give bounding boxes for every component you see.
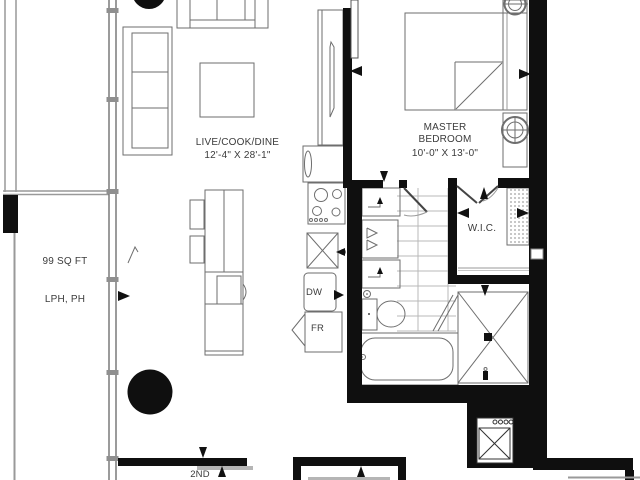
bathroom [353, 188, 458, 385]
cooktop [308, 183, 345, 224]
sofa-left [123, 27, 172, 155]
label-master-dimensions: 10'-0" X 13'-0" [400, 148, 490, 159]
kitchen-island [205, 272, 246, 355]
label-live-cook-dine: LIVE/COOK/DINE [180, 137, 295, 148]
balcony-wall-block [3, 195, 18, 233]
coffee-table [200, 63, 254, 117]
faucet-icon [336, 248, 345, 256]
bath-cabinet [362, 260, 400, 288]
wall-wic-left [448, 188, 457, 284]
door-arrow [481, 285, 489, 296]
kitchen-counter-appliance [303, 146, 345, 182]
wall-bathroom-left [347, 183, 362, 387]
bed-fold-line [456, 63, 502, 109]
kitchen-tall-cabinet [318, 10, 343, 145]
wall-bottom-right [533, 458, 633, 470]
wall-bottom-left [118, 458, 247, 466]
nightstand-top [503, 0, 528, 15]
dining-chair [190, 200, 204, 229]
wall-bath-bottom [347, 385, 547, 403]
bathtub [353, 333, 458, 385]
kitchen-sink [307, 233, 346, 268]
label-bedroom: BEDROOM [404, 134, 486, 145]
door-arrow [118, 291, 130, 301]
wall-wic-bottom [448, 275, 530, 284]
floor-plan: LIVE/COOK/DINE 12'-4" X 28'-1" MASTER BE… [0, 0, 640, 480]
shower-fixture [483, 371, 488, 380]
stair-break-line [433, 295, 453, 331]
balcony-terrace [3, 0, 109, 480]
label-dishwasher: DW [306, 287, 334, 298]
wall-right [529, 0, 547, 385]
living-area-furniture [118, 0, 268, 415]
walls [118, 0, 634, 480]
label-wic: W.I.C. [459, 223, 505, 234]
dining-chair [190, 236, 204, 263]
label-balcony-area: 99 SQ FT [30, 256, 100, 267]
door-arrow [357, 466, 365, 477]
label-2nd: 2ND [183, 469, 217, 480]
door-arrow [457, 208, 469, 218]
stair-treads [397, 188, 456, 331]
bath-cabinet [362, 188, 400, 216]
sliding-door-panel [351, 0, 358, 58]
washer-dryer [477, 418, 513, 463]
column [128, 370, 173, 415]
door-arrow [334, 290, 344, 300]
nightstand-bottom [501, 113, 529, 167]
shower-drain [484, 333, 492, 341]
label-balcony-levels: LPH, PH [30, 294, 100, 305]
shower [458, 292, 528, 383]
window-break-mark [128, 247, 138, 263]
column-top [132, 0, 166, 9]
wall-niche [531, 249, 543, 259]
wall-entry-top [293, 457, 406, 466]
label-living-dimensions: 12'-4" X 28'-1" [180, 150, 295, 161]
door-arrow [199, 447, 207, 458]
bath-mirror-cabinet [362, 220, 398, 258]
door-arrow [480, 187, 488, 199]
toilet [362, 299, 405, 330]
dining-table [190, 190, 243, 272]
window-wall [107, 0, 119, 480]
label-fridge: FR [311, 323, 335, 334]
label-master: MASTER [404, 122, 486, 133]
kitchen [292, 10, 346, 352]
bed [405, 13, 527, 110]
floor-plan-drawing [0, 0, 640, 480]
sofa-top [177, 0, 268, 28]
